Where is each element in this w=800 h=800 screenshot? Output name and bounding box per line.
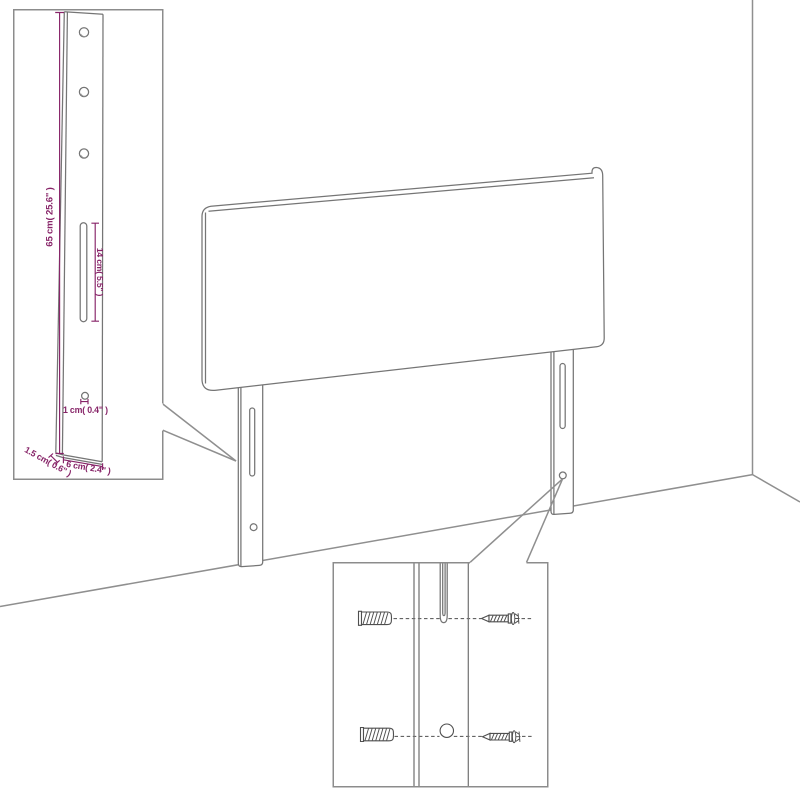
leg-front-right-edge: [102, 14, 103, 462]
right-leg-slot: [560, 364, 565, 429]
pointer-line: [527, 479, 563, 563]
headboard-panel: [202, 167, 604, 390]
leg-dimensions-inset: 65 cm( 25.6" ) 14 cm( 5.5" ) 1 cm( 0.4" …: [14, 10, 163, 480]
pointer-line: [470, 479, 563, 563]
hole-diameter-label: 1 cm( 0.4" ): [63, 405, 108, 415]
floor-right-line: [753, 475, 800, 502]
wall-mounting-inset: [333, 563, 548, 787]
callout-pointer-bottom-inset: [470, 479, 563, 563]
panel-outline: [202, 167, 604, 390]
leg-height-label: 65 cm( 25.6" ): [45, 187, 56, 246]
slot-length-label: 14 cm( 5.5" ): [95, 248, 105, 297]
leg-small-hole: [82, 392, 89, 399]
left-leg-slot: [250, 408, 255, 476]
section-slot-outer: [440, 563, 447, 623]
right-leg-screw-hole: [559, 472, 566, 479]
headboard-left-leg: [238, 378, 262, 567]
wall-plug-icon: [359, 611, 392, 625]
leg-hole: [79, 28, 88, 37]
assembly-diagram: 65 cm( 25.6" ) 14 cm( 5.5" ) 1 cm( 0.4" …: [0, 0, 800, 800]
wall-plug-icon: [361, 728, 394, 742]
section-hole: [440, 724, 453, 737]
callout-pointer-left-inset: [163, 404, 236, 461]
leg-hole: [79, 149, 88, 158]
leg-hole: [79, 87, 88, 96]
left-leg-screw-hole: [250, 524, 257, 531]
leg-slot: [80, 223, 87, 322]
pointer-line: [163, 430, 236, 461]
pointer-line: [163, 404, 236, 461]
headboard-right-leg: [551, 341, 573, 514]
